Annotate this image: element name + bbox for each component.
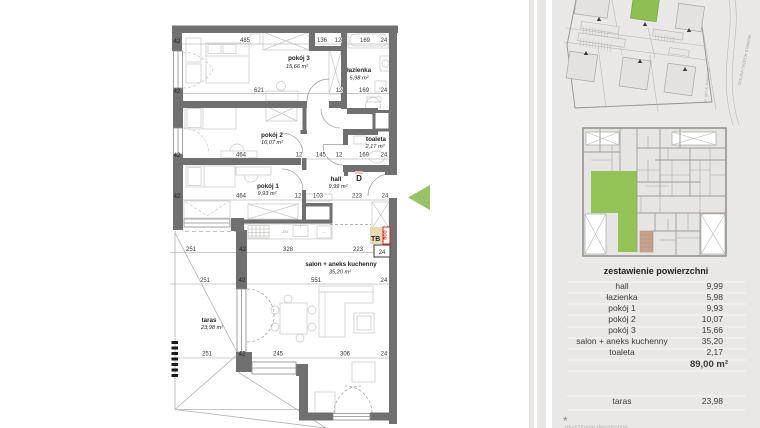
svg-text:306: 306 bbox=[340, 352, 351, 358]
svg-text:42: 42 bbox=[174, 194, 181, 200]
svg-text:toaleta: toaleta bbox=[366, 136, 387, 143]
svg-text:5,98 m²: 5,98 m² bbox=[350, 76, 370, 82]
svg-text:5,98: 5,98 bbox=[706, 292, 723, 302]
svg-text:621: 621 bbox=[254, 88, 265, 94]
svg-text:12: 12 bbox=[336, 88, 343, 94]
svg-text:zestawienie powierzchni: zestawienie powierzchni bbox=[604, 266, 709, 276]
svg-text:169: 169 bbox=[359, 153, 370, 159]
svg-text:pokój 2: pokój 2 bbox=[261, 132, 283, 139]
svg-text:9,99 m²: 9,99 m² bbox=[329, 184, 349, 190]
svg-text:35,20: 35,20 bbox=[702, 336, 724, 346]
svg-text:42: 42 bbox=[239, 247, 246, 253]
svg-text:9,93: 9,93 bbox=[706, 303, 723, 313]
svg-text:pokój 3: pokój 3 bbox=[288, 55, 310, 62]
svg-text:251: 251 bbox=[202, 352, 213, 358]
svg-text:taras: taras bbox=[613, 396, 632, 406]
svg-text:pokój 3: pokój 3 bbox=[608, 325, 636, 335]
svg-text:23,98: 23,98 bbox=[702, 396, 724, 406]
svg-text:pokój 2: pokój 2 bbox=[608, 314, 636, 324]
svg-text:TB: TB bbox=[371, 236, 380, 243]
svg-text:12: 12 bbox=[295, 194, 302, 200]
svg-text:D: D bbox=[356, 174, 362, 183]
svg-text:24: 24 bbox=[382, 194, 389, 200]
svg-text:15,66 m²: 15,66 m² bbox=[286, 64, 309, 70]
svg-text:hall: hall bbox=[615, 281, 628, 291]
svg-text:hall: hall bbox=[331, 176, 342, 183]
svg-text:245: 245 bbox=[273, 352, 284, 358]
svg-text:42: 42 bbox=[239, 352, 246, 358]
svg-text:169: 169 bbox=[360, 38, 371, 44]
svg-text:9,99: 9,99 bbox=[706, 281, 723, 291]
svg-text:251: 251 bbox=[186, 247, 197, 253]
svg-text:42: 42 bbox=[174, 153, 181, 159]
svg-text:223: 223 bbox=[352, 194, 363, 200]
svg-text:23,98 m²: 23,98 m² bbox=[200, 325, 224, 331]
svg-text:42: 42 bbox=[174, 39, 181, 45]
svg-text:RCO: RCO bbox=[383, 230, 388, 240]
svg-text:12: 12 bbox=[296, 153, 303, 159]
svg-text:485: 485 bbox=[240, 38, 251, 44]
svg-text:taras: taras bbox=[202, 317, 217, 324]
svg-text:9,93 m²: 9,93 m² bbox=[258, 191, 278, 197]
svg-text:...: ... bbox=[322, 229, 326, 235]
svg-text:42: 42 bbox=[239, 278, 246, 284]
svg-text:328: 328 bbox=[283, 247, 294, 253]
svg-text:24: 24 bbox=[381, 352, 388, 358]
svg-text:pokój 1: pokój 1 bbox=[257, 183, 279, 190]
svg-text:251: 251 bbox=[200, 278, 211, 284]
svg-text:10,07: 10,07 bbox=[702, 314, 724, 324]
svg-text:24: 24 bbox=[381, 38, 388, 44]
svg-text:12: 12 bbox=[336, 153, 343, 159]
svg-text:12: 12 bbox=[335, 38, 342, 44]
svg-text:169: 169 bbox=[359, 88, 370, 94]
svg-text:łazienka: łazienka bbox=[606, 292, 637, 302]
svg-text:2,17 m²: 2,17 m² bbox=[365, 144, 386, 150]
svg-text:223: 223 bbox=[353, 247, 364, 253]
svg-text:42: 42 bbox=[174, 89, 181, 95]
svg-text:pokój 1: pokój 1 bbox=[608, 303, 636, 313]
svg-text:35,20 m²: 35,20 m² bbox=[329, 270, 352, 276]
svg-text:145: 145 bbox=[316, 153, 327, 159]
svg-text:136: 136 bbox=[317, 38, 328, 44]
svg-text:salon + aneks kuchenny: salon + aneks kuchenny bbox=[305, 261, 377, 268]
svg-text:103: 103 bbox=[313, 194, 324, 200]
svg-text:551: 551 bbox=[311, 278, 322, 284]
svg-text:ZM: ZM bbox=[282, 229, 288, 234]
svg-text:2,17: 2,17 bbox=[706, 347, 723, 357]
svg-text:464: 464 bbox=[236, 194, 247, 200]
svg-text:464: 464 bbox=[236, 153, 247, 159]
svg-text:24: 24 bbox=[381, 88, 388, 94]
svg-text:24: 24 bbox=[381, 278, 388, 284]
svg-text:10,07 m²: 10,07 m² bbox=[261, 140, 284, 146]
svg-text:24: 24 bbox=[381, 153, 388, 159]
svg-text:salon + aneks kuchenny: salon + aneks kuchenny bbox=[576, 336, 668, 346]
svg-text:toaleta: toaleta bbox=[609, 347, 635, 357]
svg-text:15,66: 15,66 bbox=[702, 325, 724, 335]
svg-text:89,00 m²: 89,00 m² bbox=[690, 359, 728, 370]
svg-text:24: 24 bbox=[379, 250, 386, 256]
svg-text:łazienka: łazienka bbox=[347, 67, 372, 74]
